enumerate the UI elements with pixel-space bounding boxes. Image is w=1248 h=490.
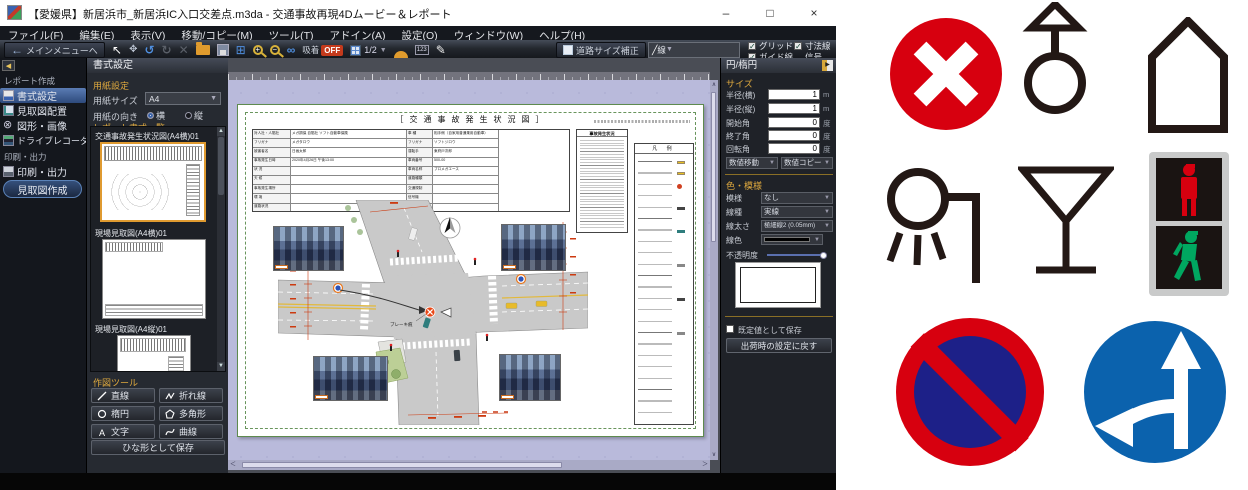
table-value-cell: 日画太郎: [291, 148, 407, 157]
template-thumb[interactable]: [117, 335, 191, 372]
road-size-icon: [563, 45, 573, 55]
drive-recorder-icon: [3, 135, 14, 146]
dimension-checkbox[interactable]: ✓寸法線: [794, 41, 831, 51]
polygon-tool-icon: [165, 409, 175, 419]
grid-scale-dropdown[interactable]: 1/2 ▼: [350, 45, 386, 56]
curve-tool-icon: [165, 427, 175, 437]
close-button[interactable]: ×: [792, 0, 836, 26]
text-tool-icon: A: [97, 427, 107, 437]
paper-size-dropdown[interactable]: A4▼: [145, 92, 221, 105]
pattern-row: 模様なし▼: [721, 192, 837, 205]
numeric-move-dropdown[interactable]: 数値移動▼: [726, 157, 778, 169]
table-label-cell: 交通規制: [407, 185, 433, 194]
radius-v-field[interactable]: 半径(縦)1m: [721, 103, 837, 116]
color-swatch: [764, 237, 810, 242]
table-label-cell: 事故発生日時: [253, 158, 291, 167]
scene-photo-bottom-right[interactable]: [499, 354, 561, 401]
grid-checkbox[interactable]: ✓グリッド: [748, 41, 793, 51]
menubar: ファイル(F)編集(E)表示(V)移動/コピー(M)ツール(T)アドイン(A)設…: [0, 26, 836, 40]
photo-caption-chip: [503, 265, 516, 269]
legend-symbol: [677, 298, 685, 301]
table-value-cell: プロメガエース: [433, 167, 499, 176]
table-value-cell: [291, 167, 407, 176]
minimize-button[interactable]: –: [704, 0, 748, 26]
svg-text:A: A: [99, 428, 105, 437]
line-style-dropdown[interactable]: ╱ 線 ▼: [648, 42, 740, 58]
curve-tool-button[interactable]: 曲線: [159, 424, 223, 439]
select-cursor-icon[interactable]: ↖: [112, 42, 122, 58]
pattern-dropdown[interactable]: なし▼: [761, 192, 833, 204]
symbol-board: [836, 0, 1248, 490]
table-value-cell: メガタロウ: [291, 139, 407, 148]
table-label-cell: 車 種: [407, 130, 433, 139]
opacity-row: 不透明度: [721, 249, 837, 262]
horizontal-scrollbar[interactable]: ＜ ＞: [228, 460, 710, 470]
template-caption: 現場見取図(A4縦)01: [95, 324, 167, 335]
sidebar-item-print[interactable]: 印刷・出力: [0, 164, 86, 179]
opacity-slider[interactable]: [767, 254, 825, 256]
canvas-viewport[interactable]: ［ 交 通 事 故 発 生 状 況 図 ］ 対人社・人賠社フリガナ被害者名事故発…: [228, 80, 710, 460]
polyline-tool-icon: [165, 391, 175, 401]
save-default-checkbox[interactable]: 既定値として保存: [721, 324, 837, 337]
legend-symbol: [677, 161, 685, 164]
slider-knob[interactable]: [820, 252, 827, 259]
signal-map-symbol: [1005, 2, 1105, 114]
polygon-tool-button[interactable]: 多角形: [159, 406, 223, 421]
legend-symbol: [677, 230, 685, 233]
table-label-cell: 天 候: [253, 176, 291, 185]
sidebar-item-layout[interactable]: 見取図配置: [0, 103, 86, 118]
text-tool-button[interactable]: A文字: [91, 424, 155, 439]
table-value-cell: 相手側（自家用普通乗用自動車）: [433, 130, 499, 139]
zoom-out-icon[interactable]: −: [270, 45, 280, 55]
measure-ruler-icon[interactable]: 123: [415, 45, 429, 55]
legend-symbol: [677, 332, 685, 335]
photo-caption-chip: [315, 395, 328, 399]
linetype-row: 線種実線▼: [721, 206, 837, 219]
protractor-icon[interactable]: [394, 51, 408, 58]
road-size-correct-button[interactable]: 道路サイズ補正: [556, 42, 646, 58]
pen-icon[interactable]: ✎: [436, 42, 446, 58]
app-icon: [7, 5, 22, 20]
drawing-canvas: ［ 交 通 事 故 発 生 状 況 図 ］ 対人社・人賠社フリガナ被害者名事故発…: [228, 58, 720, 473]
signal-post-symbol: [1018, 165, 1114, 283]
table-label-cell: 道路種類: [407, 176, 433, 185]
template-scrollbar[interactable]: ▲ ▼: [217, 127, 225, 371]
vertical-scrollbar[interactable]: ∧ ∨: [710, 80, 718, 460]
bottom-strip: [0, 473, 836, 490]
linewidth-dropdown[interactable]: 極細線2 (0.05mm)▼: [761, 220, 833, 232]
style-preview: [735, 262, 821, 308]
titlebar: 【愛媛県】新居浜市_新居浜IC入口交差点.m3da - 交通事故再現4Dムービー…: [0, 0, 836, 26]
pedestrian-signal-symbol: [1149, 152, 1229, 296]
chevron-down-icon: ▼: [380, 47, 387, 54]
vehicle-car: [536, 301, 547, 307]
legend-symbol: [677, 264, 685, 267]
brake-mark-label: ブレーキ痕: [390, 321, 413, 328]
vehicle-car: [506, 303, 517, 309]
toolbar: ← メインメニューへ ↖ ✥ ↺ ↻ ✕ ⊞ + − ∞ 吸着 OFF: [0, 40, 836, 60]
scene-photo-top-left[interactable]: [273, 226, 344, 271]
photo-caption-chip: [275, 265, 288, 269]
left-sidebar: ◀ レポート作成 書式設定 見取図配置 ⊗図形・画像 ドライブレコーダ 印刷・出…: [0, 58, 86, 473]
legend-symbol: [677, 184, 682, 189]
table-value-cell: ソフトジロウ: [433, 139, 499, 148]
infinite-icon[interactable]: ∞: [287, 42, 296, 58]
grid-icon: [350, 45, 361, 56]
table-label-cell: 運転手: [407, 148, 433, 157]
ellipse-tool-button[interactable]: 楕円: [91, 406, 155, 421]
end-angle-field[interactable]: 終了角0度: [721, 130, 837, 143]
delete-icon[interactable]: ✕: [179, 42, 189, 58]
save-icon[interactable]: [217, 44, 229, 56]
radius-h-field[interactable]: 半径(横)1m: [721, 89, 837, 102]
scene-photo-top-right[interactable]: [501, 224, 566, 271]
document-date-line: [594, 120, 690, 123]
scroll-left-icon[interactable]: ＜: [228, 460, 238, 470]
snap-toggle[interactable]: 吸着 OFF: [302, 44, 343, 56]
main-menu-back-button[interactable]: ← メインメニューへ: [4, 42, 105, 58]
building-symbol: [1148, 17, 1228, 133]
template-thumb[interactable]: [102, 239, 206, 319]
scroll-right-icon[interactable]: ＞: [700, 460, 710, 470]
sidebar-item-format[interactable]: 書式設定: [0, 88, 86, 103]
radio-icon: [185, 112, 192, 119]
popout-icon[interactable]: ▶: [822, 60, 833, 71]
vehicle-car: [454, 350, 461, 361]
table-value-cell: 東府戸次郎: [433, 148, 499, 157]
chevron-down-icon: ▼: [666, 44, 673, 56]
linewidth-row: 線太さ極細線2 (0.05mm)▼: [721, 220, 837, 233]
table-label-cell: フリガナ: [253, 139, 291, 148]
properties-panel: 円/楕円 ▶ サイズ 半径(横)1m 半径(縦)1m 開始角0度 終了角0度 回…: [720, 58, 836, 473]
template-list: 交通事故発生状況図(A4横)01 現場見取図(A4横)01 現場見取図(A4縦)…: [90, 126, 226, 372]
maximize-button[interactable]: □: [748, 0, 792, 26]
numeric-copy-dropdown[interactable]: 数値コピー▼: [781, 157, 833, 169]
scroll-up-icon[interactable]: ▲: [217, 127, 225, 136]
line-tool-button[interactable]: 直線: [91, 388, 155, 403]
sidebar-section-print: 印刷・出力: [0, 148, 86, 164]
fit-view-icon[interactable]: ⊞: [236, 42, 246, 58]
table-label-cell: 被害者名: [253, 148, 291, 157]
line-color-dropdown[interactable]: ▼: [761, 234, 823, 245]
table-value-cell: [433, 185, 499, 194]
factory-reset-button[interactable]: 出荷時の設定に戻す: [726, 338, 832, 353]
table-value-cell: [291, 185, 407, 194]
screenshot-root: 【愛媛県】新居浜市_新居浜IC入口交差点.m3da - 交通事故再現4Dムービー…: [0, 0, 1248, 490]
polyline-tool-button[interactable]: 折れ線: [159, 388, 223, 403]
app-window: 【愛媛県】新居浜市_新居浜IC入口交差点.m3da - 交通事故再現4Dムービー…: [0, 0, 836, 473]
scroll-down-icon[interactable]: ∨: [710, 450, 718, 460]
table-label-cell: フリガナ: [407, 139, 433, 148]
sidebar-item-driverecorder[interactable]: ドライブレコーダ: [0, 133, 86, 148]
scene-photo-bottom-left[interactable]: [313, 356, 388, 401]
snap-off-badge: OFF: [321, 45, 343, 56]
radio-icon: [147, 112, 154, 119]
table-label-cell: 車両名称: [407, 167, 433, 176]
save-as-template-button[interactable]: ひな形として保存: [91, 440, 225, 455]
table-label-cell: 事故発生場所: [253, 185, 291, 194]
open-file-icon[interactable]: [196, 45, 210, 55]
template-caption: 交通事故発生状況図(A4横)01: [95, 131, 199, 142]
layout-image-icon: [3, 105, 14, 116]
format-settings-panel: 書式設定 用紙設定 用紙サイズ A4▼ 用紙の向き 横 縦 レポート書式一覧 交…: [86, 58, 228, 473]
zoom-in-icon[interactable]: +: [253, 45, 263, 55]
table-value-cell: 500-00: [433, 158, 499, 167]
line-tool-icon: [97, 391, 107, 401]
shapes-icon: ⊗: [3, 120, 14, 131]
template-caption: 現場見取図(A4横)01: [95, 228, 167, 239]
printer-icon: [3, 166, 14, 177]
chevron-down-icon: ▼: [210, 93, 217, 105]
linetype-dropdown[interactable]: 実線▼: [761, 206, 833, 218]
linecolor-row: 線色▼: [721, 234, 837, 247]
paper-size-label: 用紙サイズ: [93, 94, 138, 107]
paper-section-label: 用紙設定: [93, 79, 129, 92]
table-label-cell: 対人社・人賠社: [253, 130, 291, 139]
redo-icon[interactable]: ↻: [162, 42, 172, 58]
format-panel-header: 書式設定: [87, 58, 228, 73]
table-label-cell: 車両番号: [407, 158, 433, 167]
table-value-cell: メガ損保 自賠社 ソフト自動車保険: [291, 130, 407, 139]
horizontal-ruler: [228, 72, 710, 80]
legend-table: 凡 例: [634, 143, 694, 425]
sidebar-item-shapes[interactable]: ⊗図形・画像: [0, 118, 86, 133]
create-plan-button[interactable]: 見取図作成: [3, 180, 82, 198]
pan-cursor-icon[interactable]: ✥: [129, 42, 137, 58]
window-title: 【愛媛県】新居浜市_新居浜IC入口交差点.m3da - 交通事故再現4Dムービー…: [28, 6, 452, 22]
legend-rows: [638, 158, 672, 420]
collapse-panel-icon[interactable]: ◀: [2, 60, 15, 71]
format-doc-icon: [3, 90, 14, 101]
start-angle-field[interactable]: 開始角0度: [721, 117, 837, 130]
collision-x-symbol: [888, 17, 1004, 131]
legend-symbol: [677, 172, 685, 175]
table-value-cell: 2020年4月26日 午後13:00: [291, 158, 407, 167]
table-value-cell: [433, 176, 499, 185]
back-arrow-icon: ←: [11, 42, 23, 58]
color-section-label: 色・模様: [726, 179, 762, 192]
orientation-portrait-radio[interactable]: 縦: [185, 109, 203, 122]
rotation-angle-field[interactable]: 回転角0度: [721, 143, 837, 156]
sidebar-section-report: レポート作成: [0, 72, 86, 88]
compass: [440, 217, 460, 238]
template-thumb-selected[interactable]: [100, 142, 206, 222]
report-page[interactable]: ［ 交 通 事 故 発 生 状 況 図 ］ 対人社・人賠社フリガナ被害者名事故発…: [237, 104, 704, 437]
table-value-cell: [291, 176, 407, 185]
photo-caption-chip: [501, 395, 514, 399]
undo-icon[interactable]: ↺: [144, 42, 154, 58]
designated-direction-sign: [1077, 313, 1233, 471]
scroll-down-icon[interactable]: ▼: [217, 362, 225, 371]
legend-symbol: [677, 207, 685, 210]
properties-header: 円/楕円 ▶: [721, 58, 836, 73]
no-parking-sign: [891, 313, 1049, 471]
scroll-up-icon[interactable]: ∧: [710, 80, 718, 90]
streetlight-symbol: [886, 163, 986, 285]
table-label-cell: 状 況: [253, 167, 291, 176]
ellipse-tool-icon: [97, 409, 107, 419]
